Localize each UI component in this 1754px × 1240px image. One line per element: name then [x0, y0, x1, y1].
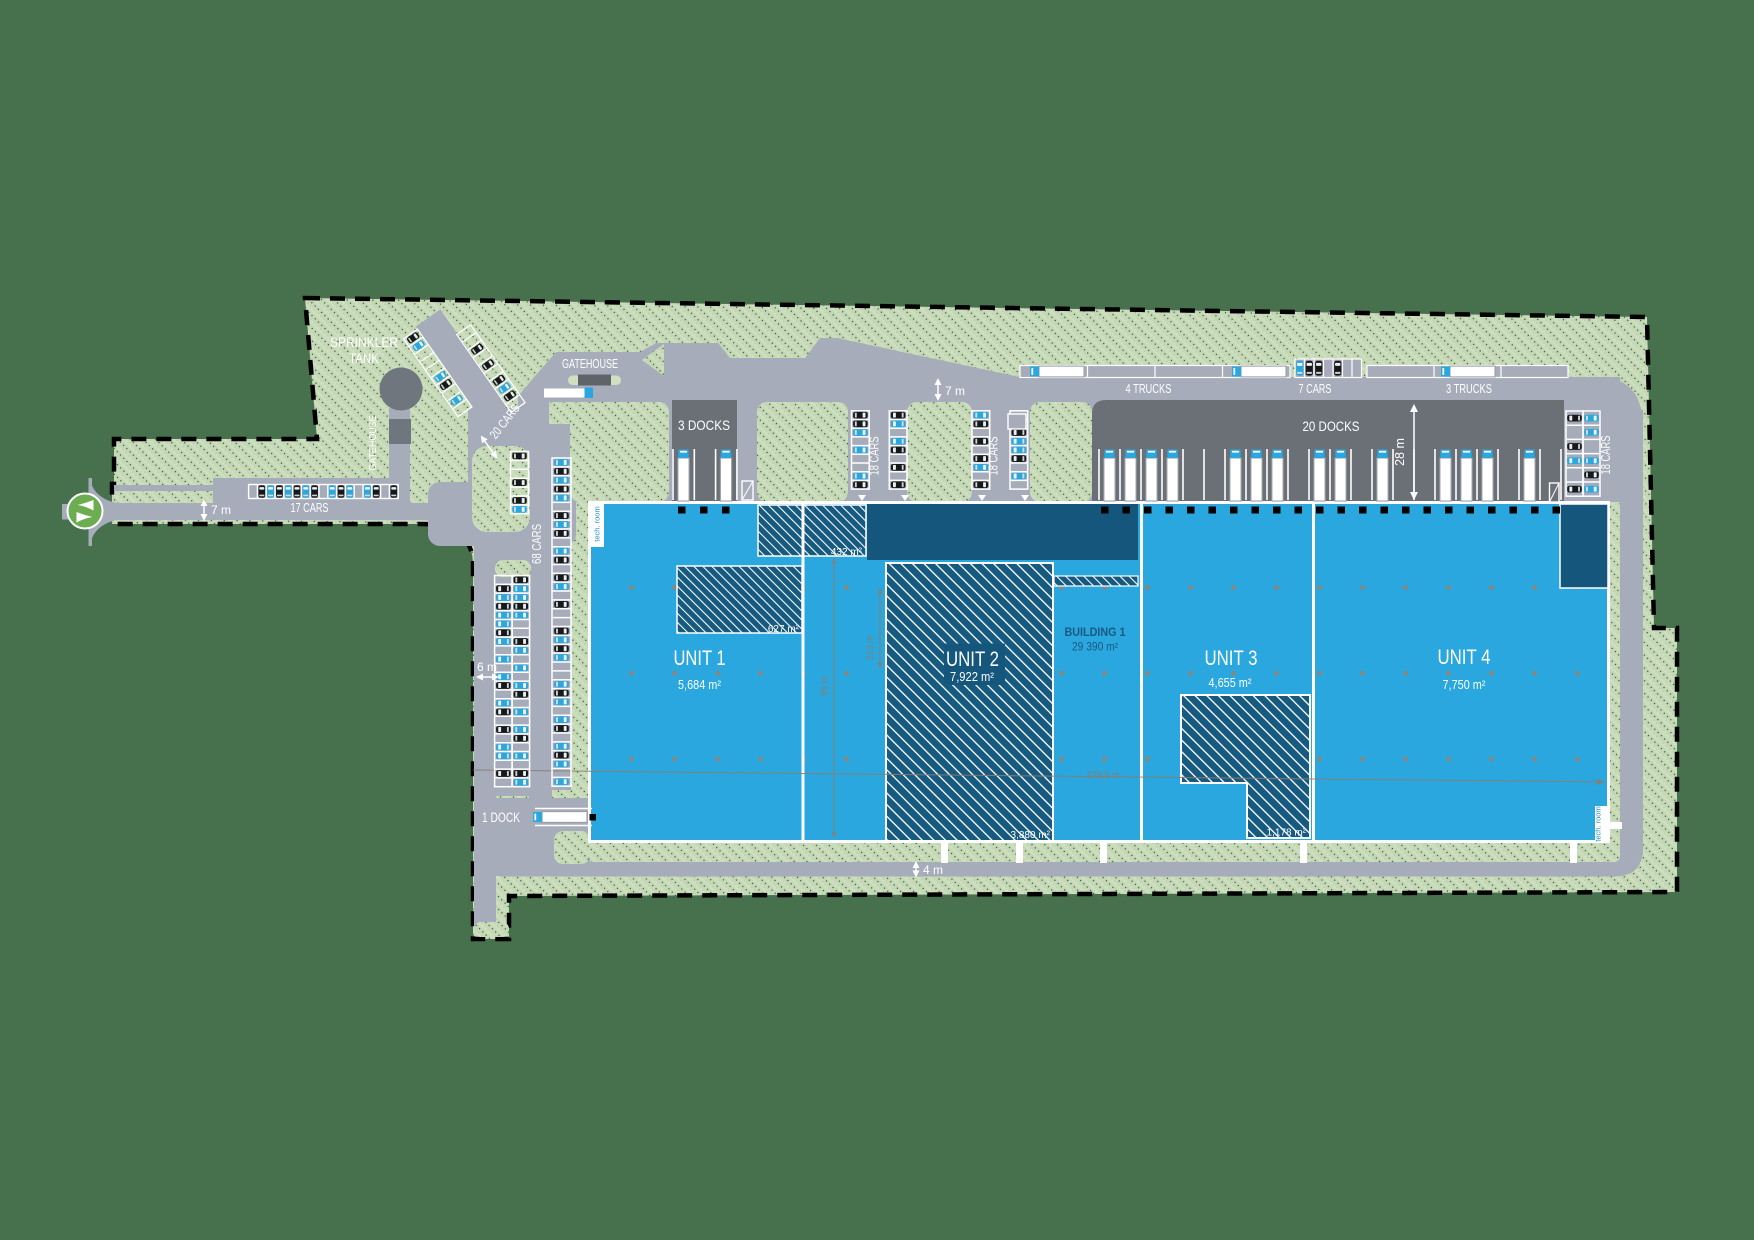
svg-text:5,684 m²: 5,684 m² [678, 678, 721, 692]
svg-text:3 DOCKS: 3 DOCKS [678, 418, 730, 433]
svg-text:20 DOCKS: 20 DOCKS [1303, 419, 1360, 434]
svg-text:7 CARS: 7 CARS [1299, 382, 1332, 396]
svg-text:UNIT 2: UNIT 2 [946, 647, 999, 671]
svg-text:213 m: 213 m [865, 635, 875, 660]
svg-text:6 m: 6 m [477, 660, 497, 674]
svg-text:SPRINKLER: SPRINKLER [330, 334, 398, 350]
svg-text:UNIT 4: UNIT 4 [1438, 645, 1491, 669]
svg-text:4,655 m²: 4,655 m² [1209, 676, 1252, 690]
svg-text:GATEHOUSE: GATEHOUSE [562, 357, 618, 371]
svg-text:4 TRUCKS: 4 TRUCKS [1126, 382, 1172, 396]
svg-text:18 CARS: 18 CARS [1599, 436, 1613, 475]
svg-text:17 CARS: 17 CARS [291, 501, 329, 515]
svg-text:278,5 m: 278,5 m [1087, 770, 1120, 780]
svg-text:UNIT 1: UNIT 1 [674, 646, 726, 670]
svg-text:7 m: 7 m [211, 503, 231, 517]
svg-text:1,178 m²: 1,178 m² [1267, 828, 1307, 839]
svg-text:7,750 m²: 7,750 m² [1443, 678, 1486, 692]
svg-text:29 390 m²: 29 390 m² [1072, 642, 1118, 654]
svg-text:18 CARS: 18 CARS [987, 437, 1001, 476]
svg-text:96 m: 96 m [819, 676, 829, 696]
svg-text:3 TRUCKS: 3 TRUCKS [1446, 382, 1492, 396]
svg-text:3,880 m²: 3,880 m² [1011, 830, 1051, 841]
svg-text:TANK: TANK [349, 350, 380, 366]
svg-text:68 CARS: 68 CARS [530, 524, 544, 564]
svg-text:1 DOCK: 1 DOCK [482, 810, 520, 825]
svg-text:7 m: 7 m [945, 384, 965, 398]
svg-text:18 CARS: 18 CARS [868, 437, 882, 476]
svg-text:7,922 m²: 7,922 m² [950, 670, 994, 684]
svg-text:GATEHOUSE: GATEHOUSE [367, 416, 379, 471]
svg-text:tech. room: tech. room [1594, 806, 1603, 841]
svg-text:432 m²: 432 m² [831, 547, 863, 558]
svg-text:BUILDING 1: BUILDING 1 [1065, 625, 1126, 639]
svg-text:UNIT 3: UNIT 3 [1205, 646, 1258, 670]
svg-text:tech. room: tech. room [593, 506, 602, 541]
svg-text:627 m²: 627 m² [768, 624, 800, 635]
svg-text:28 m: 28 m [1393, 438, 1407, 466]
svg-text:4 m: 4 m [923, 863, 943, 877]
